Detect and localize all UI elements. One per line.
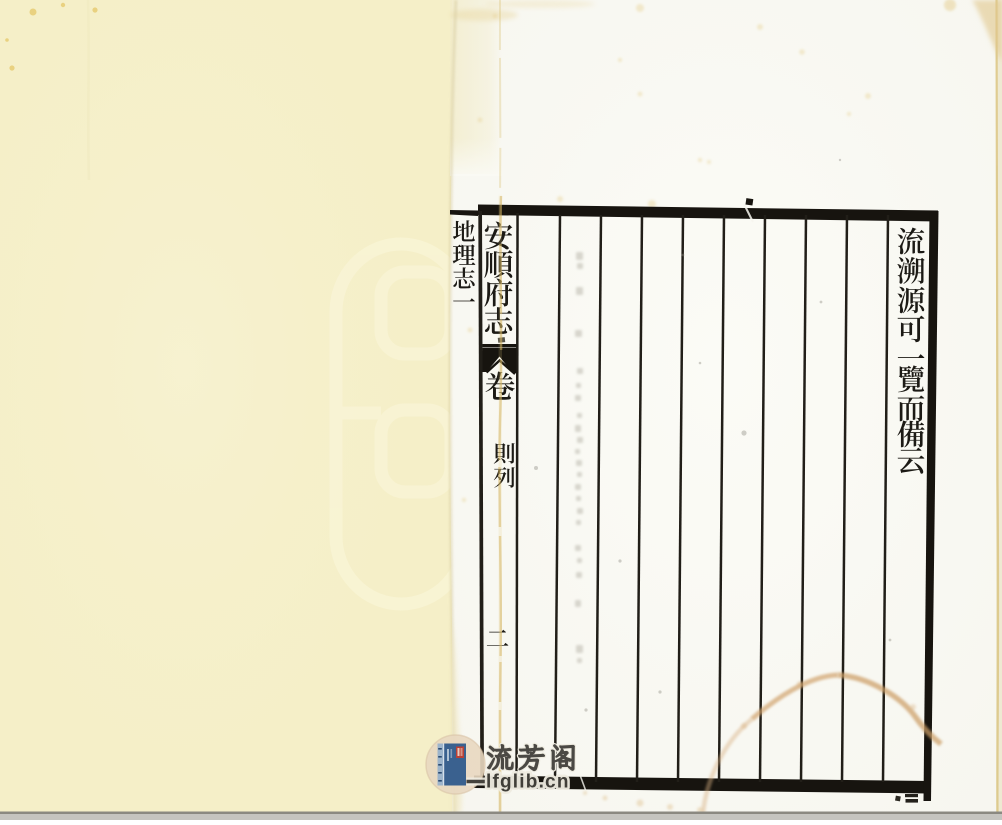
svg-text:lfglib.cn: lfglib.cn [486,772,570,793]
